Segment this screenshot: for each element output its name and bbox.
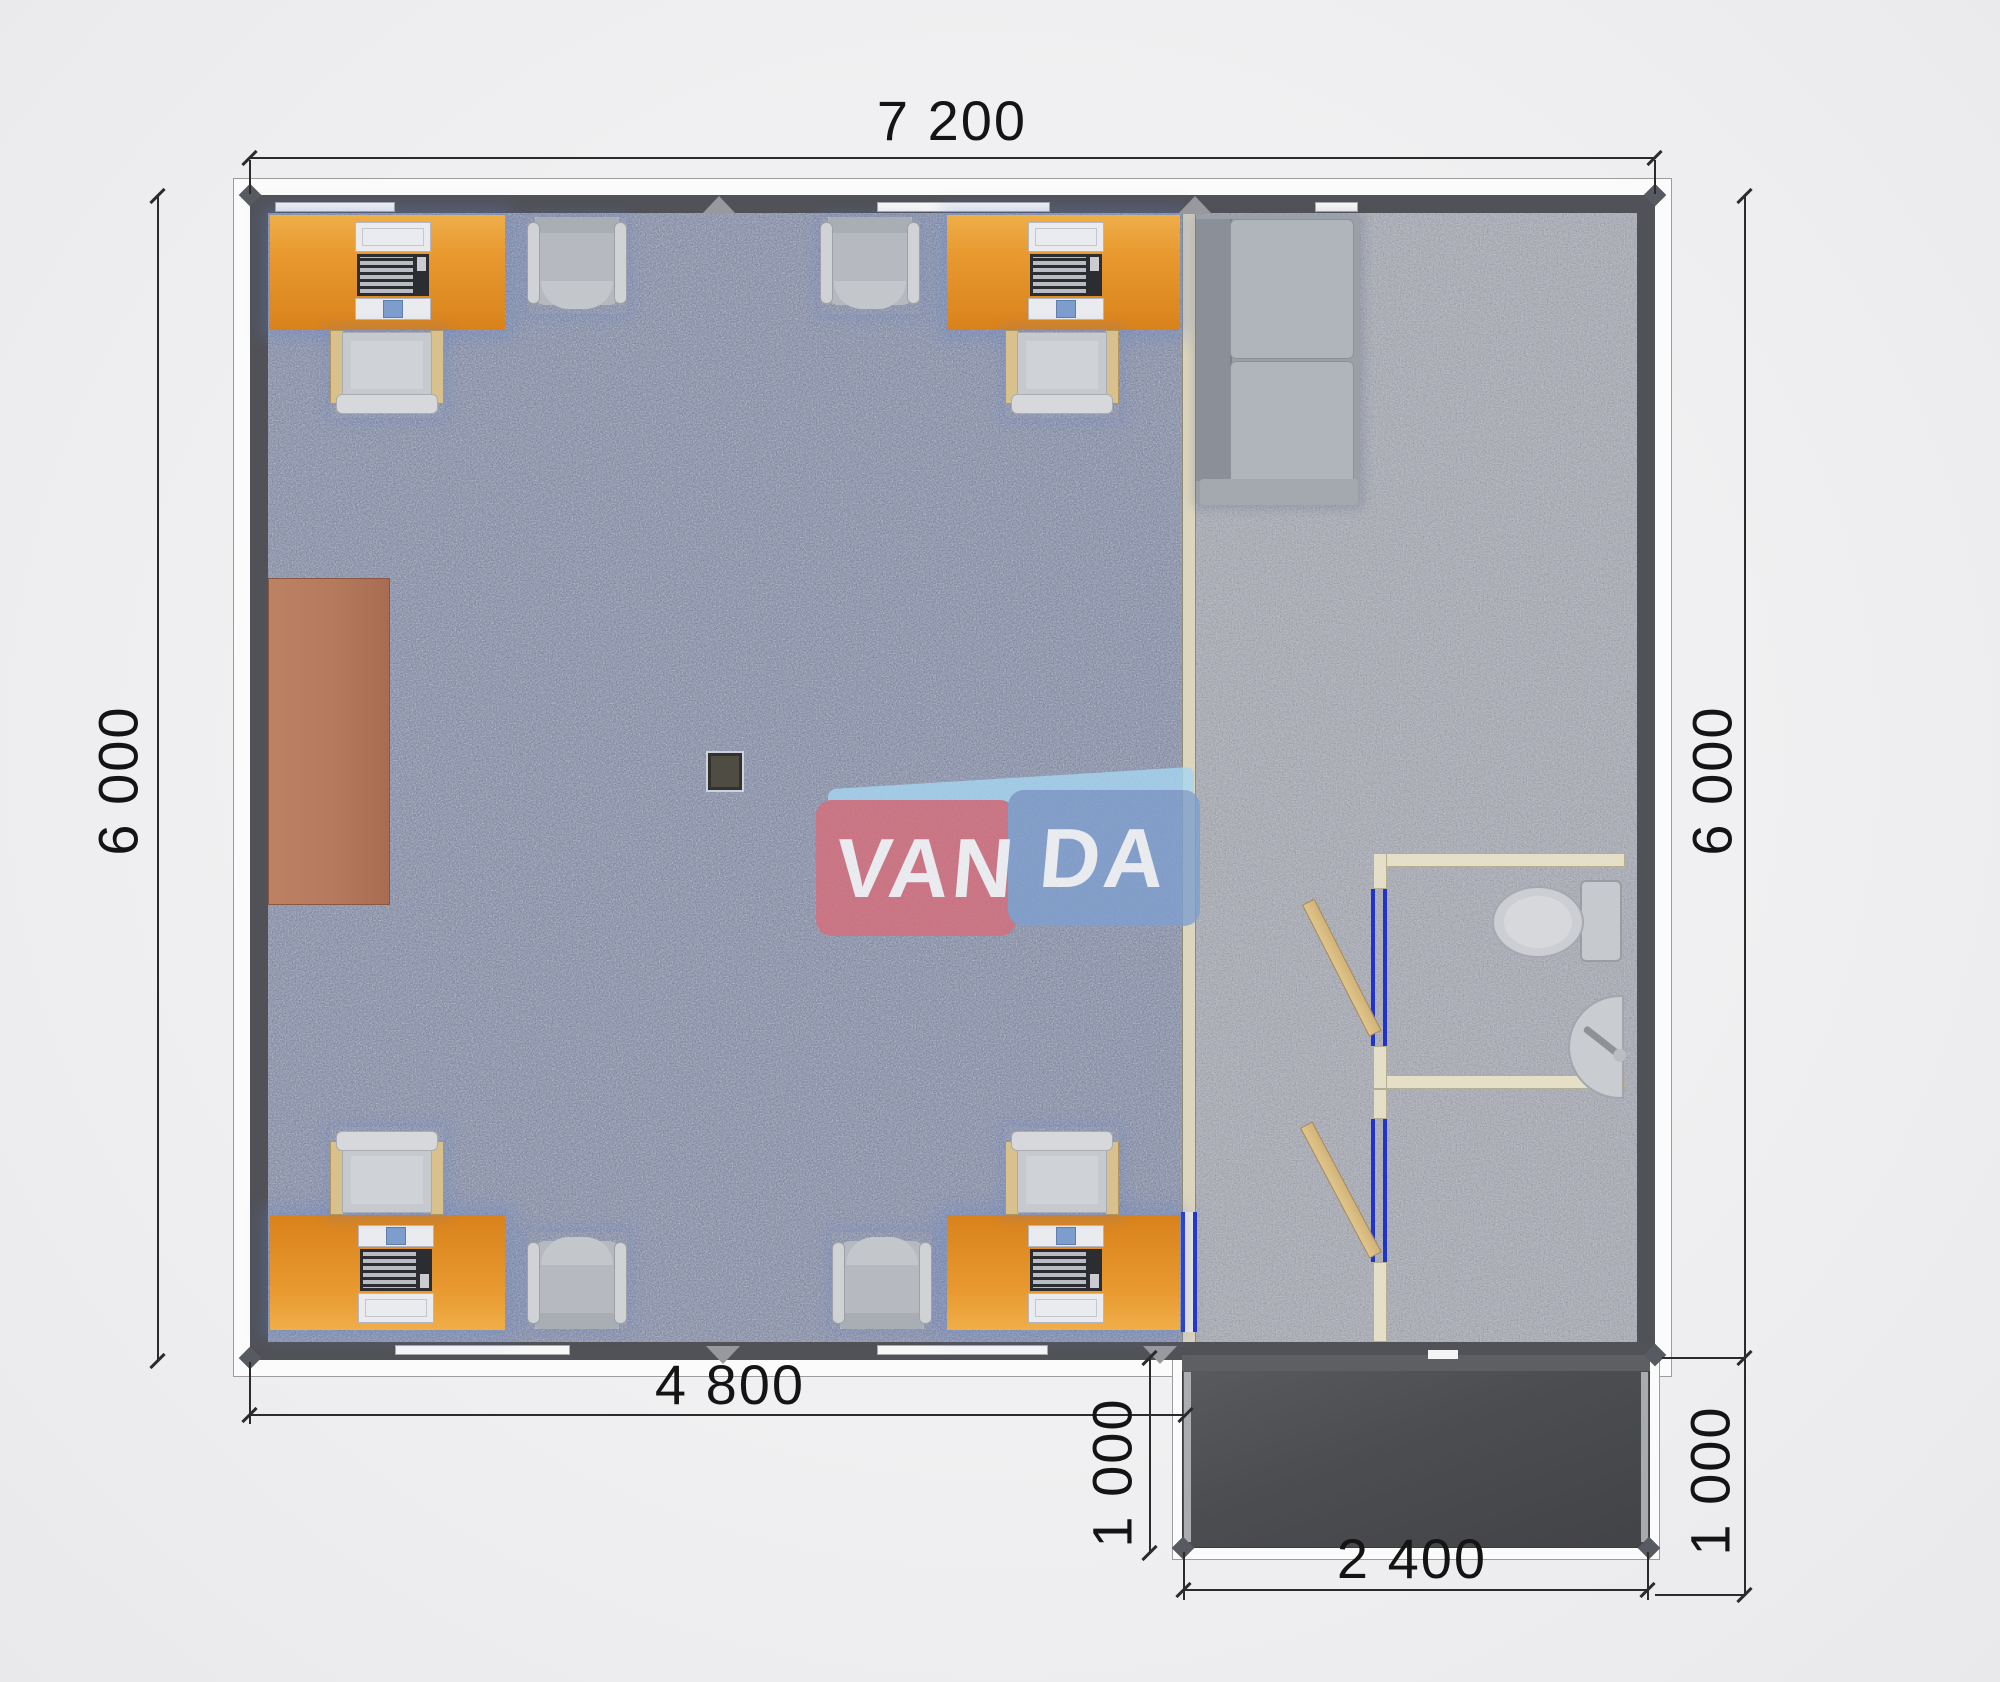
column	[708, 753, 742, 790]
toilet-icon	[1492, 886, 1584, 958]
logo-text-van: VAN	[832, 820, 1021, 917]
bathroom-wall	[1373, 1046, 1387, 1089]
vanda-watermark: VAN DA	[808, 748, 1208, 938]
keyboard-icon	[357, 254, 429, 296]
dimension-label-right: 6 000	[1680, 701, 1745, 861]
dimension-line-right	[1744, 195, 1746, 1595]
divider-door-frame	[1181, 1212, 1185, 1332]
dimension-label-porch-bottom: 2 400	[1312, 1526, 1512, 1591]
computer-icon	[358, 1225, 434, 1323]
dimension-label-porch-left: 1 000	[1080, 1393, 1145, 1553]
mouse-pad	[383, 300, 403, 318]
dimension-line-top	[250, 157, 1656, 159]
storage-wall	[1373, 1089, 1387, 1119]
porch-rail	[1641, 1372, 1648, 1542]
monitor-icon	[355, 222, 431, 252]
extension-line	[1655, 1594, 1746, 1596]
module-joint-marker	[1178, 196, 1212, 214]
armchair	[527, 1232, 627, 1329]
dimension-label-top: 7 200	[852, 88, 1052, 153]
sideboard-cabinet	[268, 578, 390, 905]
office-chair	[1005, 330, 1119, 418]
storage-wall	[1373, 1262, 1387, 1342]
toilet-tank	[1580, 880, 1622, 962]
logo-text-da: DA	[1036, 810, 1172, 907]
extension-line	[1662, 1357, 1746, 1359]
sofa	[1196, 215, 1360, 505]
window	[395, 1345, 570, 1355]
bathroom-wall	[1373, 853, 1387, 889]
extension-line	[249, 160, 251, 194]
bathroom-wall	[1373, 853, 1625, 867]
office-chair	[1005, 1127, 1119, 1215]
extension-line	[1647, 1552, 1649, 1600]
extension-line	[1183, 1552, 1185, 1600]
porch-rail	[1184, 1372, 1191, 1542]
entrance-porch	[1182, 1355, 1650, 1548]
window	[877, 202, 1050, 212]
computer-icon	[1028, 1225, 1104, 1323]
dimension-line-left	[157, 195, 159, 1361]
window	[1315, 202, 1358, 212]
armchair	[820, 217, 920, 314]
window	[877, 1345, 1048, 1355]
storage-door-frame	[1383, 1119, 1387, 1262]
porch-edge	[1182, 1355, 1650, 1371]
office-chair	[330, 330, 444, 418]
floor-plan-canvas: VAN DA 7 200 6 000 6 000 1 000 4 800 1 0…	[0, 0, 2000, 1682]
divider-door-frame	[1193, 1212, 1197, 1332]
dimension-label-left: 6 000	[86, 701, 151, 861]
office-chair	[330, 1127, 444, 1215]
armchair	[527, 217, 627, 314]
window	[275, 202, 395, 212]
bathroom-door-frame	[1383, 889, 1387, 1046]
computer-icon	[1028, 222, 1104, 320]
extension-line	[1654, 160, 1656, 194]
module-joint-marker	[702, 196, 736, 214]
dimension-label-porch-right: 1 000	[1678, 1401, 1743, 1561]
computer-icon	[355, 222, 431, 320]
dimension-line-porch-left	[1149, 1357, 1151, 1552]
door-threshold	[1428, 1350, 1458, 1359]
armchair	[832, 1232, 932, 1329]
dimension-label-bottom-left: 4 800	[630, 1352, 830, 1417]
